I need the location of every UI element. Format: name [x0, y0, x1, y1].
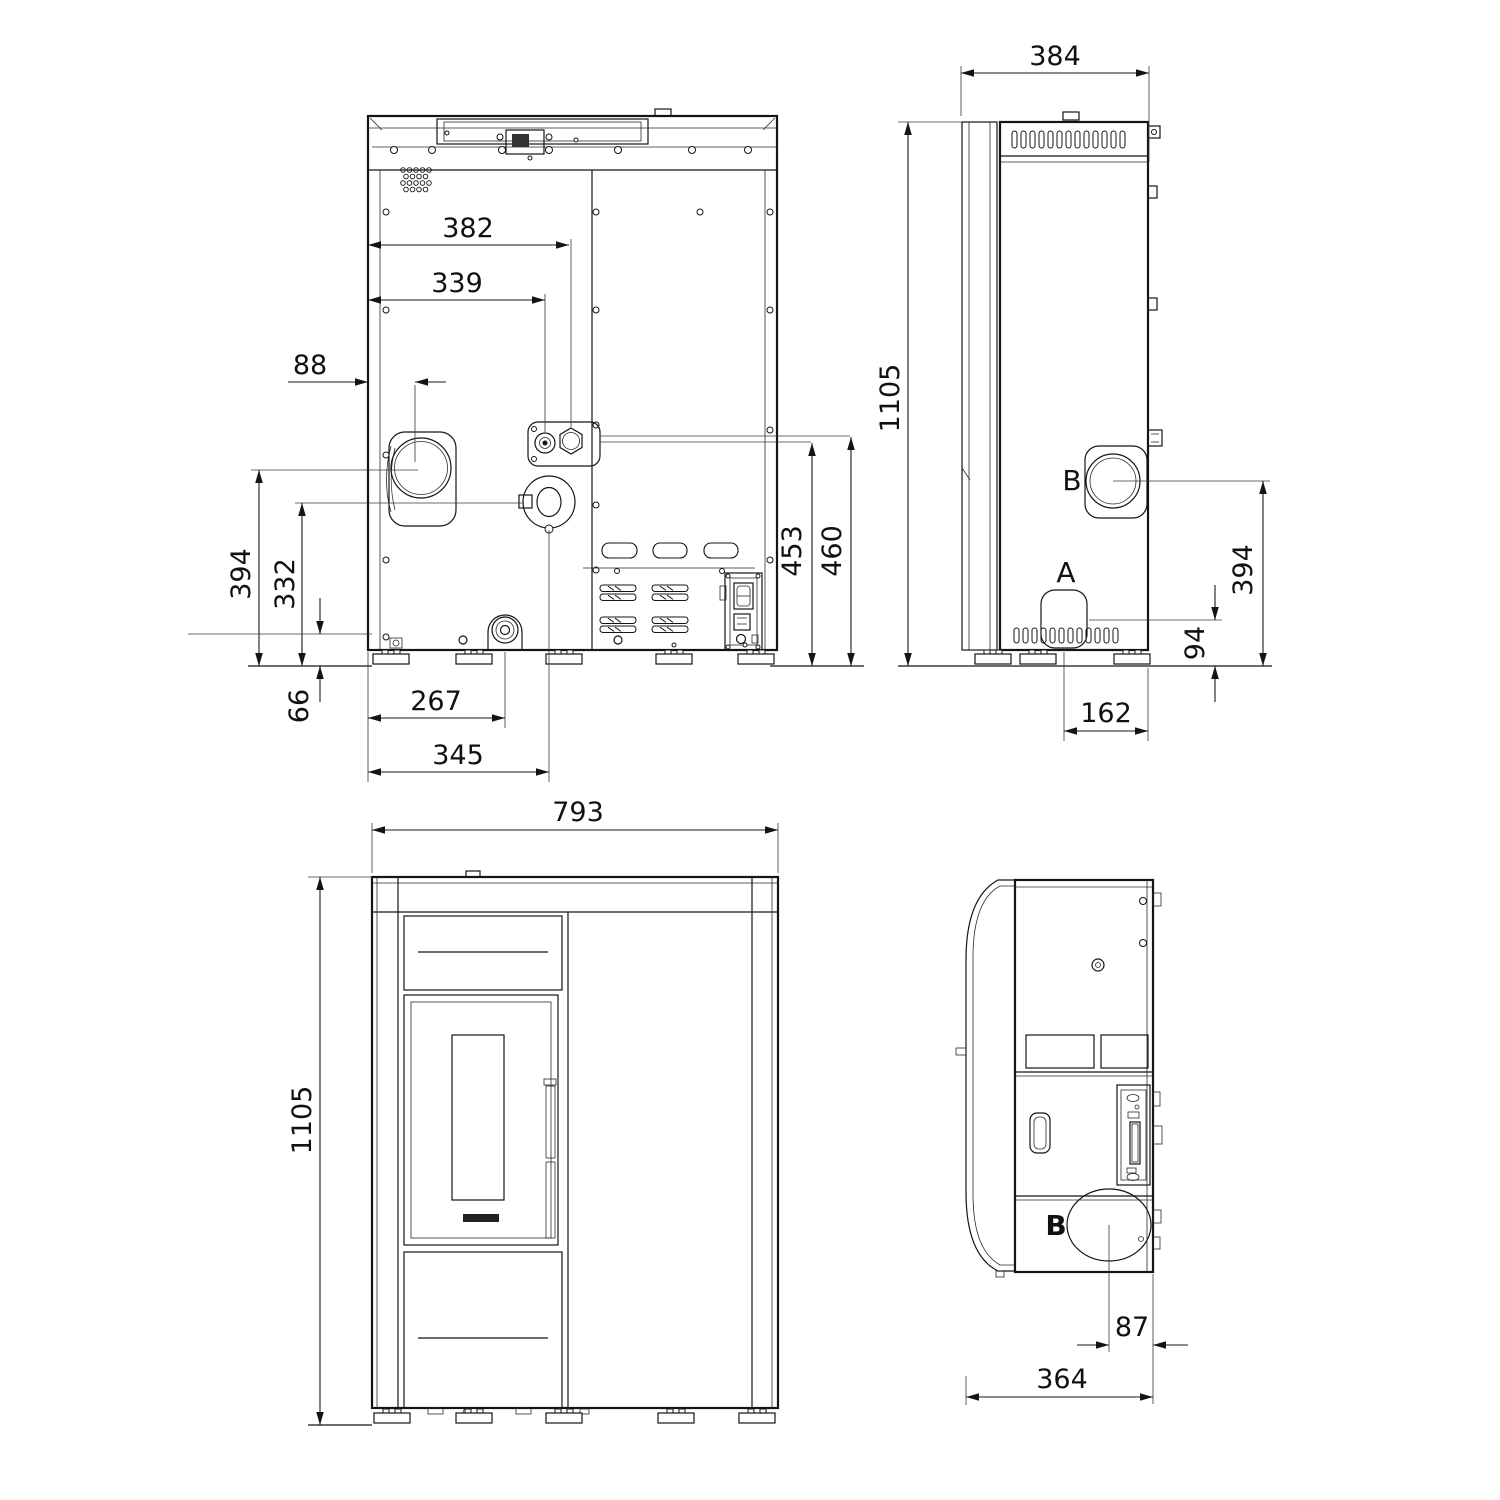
louver-slats	[600, 585, 688, 633]
front-dimensions: 793 1105	[287, 797, 778, 1425]
door-hinge-upper	[546, 1086, 555, 1158]
dimension-drawing: 382 339 88 394 332 66 453 460 267	[0, 0, 1500, 1500]
dim-87: 87	[1077, 1225, 1188, 1404]
dim-345-value: 345	[432, 740, 484, 771]
top-recess	[437, 119, 648, 144]
dim-1105-side-value: 1105	[875, 364, 906, 433]
side-handle	[1030, 1113, 1050, 1153]
rear-vent-slots	[602, 543, 738, 558]
side-view-top: B A	[962, 112, 1162, 664]
dim-460-value: 460	[817, 525, 848, 577]
dim-1105-front: 1105	[287, 877, 372, 1425]
power-inlet-panel	[720, 573, 762, 650]
door-hinge-lower	[546, 1162, 555, 1238]
dim-66-value: 66	[284, 689, 315, 723]
dim-162: 162	[1064, 652, 1148, 741]
dim-364-value: 364	[1036, 1364, 1088, 1395]
dim-382: 382	[368, 213, 569, 245]
side-button	[1092, 959, 1104, 971]
dim-460: 460	[817, 437, 851, 666]
dim-94-value: 94	[1180, 626, 1211, 660]
rear-feet	[373, 650, 774, 664]
convection-grilles	[1026, 1035, 1148, 1068]
dim-394-side: 394	[1228, 481, 1263, 666]
side-top-feet	[975, 650, 1150, 664]
left-tab	[956, 1048, 966, 1055]
dim-384-value: 384	[1029, 41, 1081, 72]
dim-364: 364	[966, 1364, 1153, 1405]
hopper-front-panel	[404, 916, 562, 990]
dim-1105-side: 1105	[875, 122, 962, 666]
dim-339-value: 339	[431, 268, 483, 299]
ash-drawer-panel	[404, 1252, 562, 1408]
technical-drawing-page: 382 339 88 394 332 66 453 460 267	[0, 0, 1500, 1500]
dim-394-side-value: 394	[1228, 544, 1259, 596]
label-b-top: B	[1062, 464, 1081, 497]
label-b-bottom: B	[1045, 1209, 1066, 1242]
door-glass	[452, 1035, 504, 1200]
top-vent-slots	[1012, 131, 1125, 148]
rear-heat-shield	[962, 122, 997, 650]
side-bottom-dimensions: 87 364	[966, 1225, 1188, 1405]
dim-87-value: 87	[1115, 1312, 1149, 1343]
screw-row	[391, 131, 752, 160]
rear-dimensions: 382 339 88 394 332 66 453 460 267	[188, 213, 864, 782]
dim-793-value: 793	[552, 797, 604, 828]
brand-logo	[463, 1214, 499, 1222]
dim-394-rear-value: 394	[226, 548, 257, 600]
dim-267-value: 267	[410, 686, 462, 717]
label-a: A	[1056, 556, 1075, 589]
port-b-side	[1085, 430, 1162, 518]
water-connections	[528, 422, 600, 466]
dim-88-value: 88	[293, 350, 327, 381]
dim-453-value: 453	[777, 525, 808, 577]
dim-453: 453	[777, 443, 812, 666]
lid-latch	[1063, 112, 1079, 120]
dim-339: 339	[368, 268, 545, 300]
air-intake-port	[387, 432, 457, 526]
flue-gas-port	[519, 476, 575, 533]
dim-1105-front-value: 1105	[287, 1086, 318, 1155]
dim-382-value: 382	[442, 213, 494, 244]
bottom-vent-slots	[1014, 628, 1118, 643]
dim-332-value: 332	[270, 558, 301, 610]
dim-162-value: 162	[1080, 698, 1132, 729]
side-view-bottom: B	[956, 880, 1162, 1277]
dim-94: 94	[1089, 585, 1222, 702]
front-view	[372, 871, 778, 1423]
dim-793: 793	[372, 797, 778, 873]
vent-hole-grid	[401, 168, 432, 192]
control-panel	[1117, 1085, 1150, 1185]
bottom-details	[390, 636, 747, 648]
fire-door	[404, 995, 558, 1245]
dim-66: 66	[188, 598, 372, 723]
drain-fitting	[488, 615, 522, 650]
dim-332: 332	[270, 503, 524, 666]
display-slot	[1130, 1122, 1140, 1164]
front-feet	[374, 1409, 775, 1423]
rear-view	[368, 109, 850, 664]
